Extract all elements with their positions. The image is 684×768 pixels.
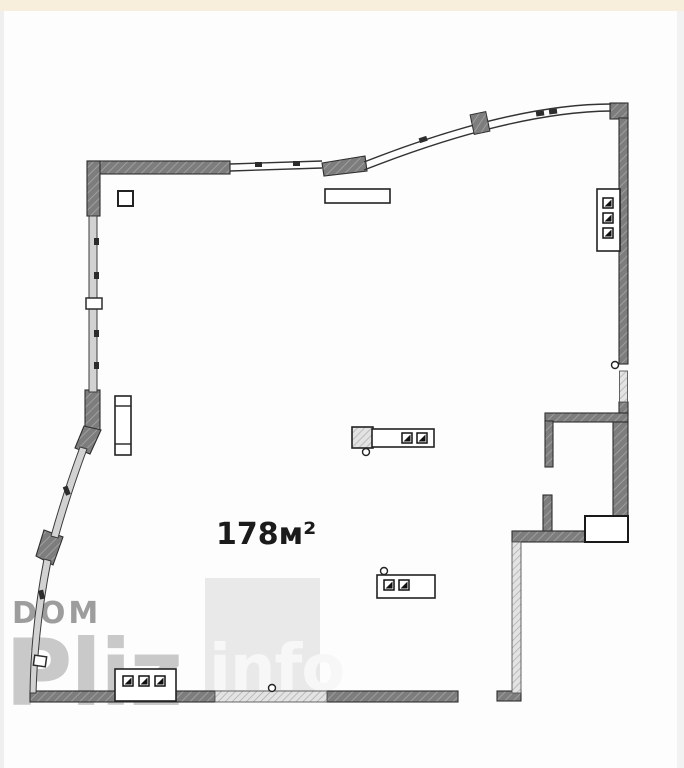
screenshot-root: DOM Pliz info <box>0 0 684 768</box>
hinge-circle-icon <box>381 568 388 575</box>
left-edge-border <box>0 11 4 768</box>
electrical-panel-icon <box>597 189 620 251</box>
switch-square-icon <box>603 198 613 238</box>
window-tick <box>94 272 99 279</box>
window-tick <box>94 362 99 369</box>
wall-bottom-center <box>327 691 458 702</box>
fixtures <box>115 189 620 701</box>
wall-top-left-post <box>87 161 100 216</box>
wall-niche-left-upper <box>545 421 553 467</box>
wall-left-block <box>85 390 100 430</box>
electrical-panel-bottom-icon <box>115 669 176 701</box>
window-tick <box>94 238 99 245</box>
door-hinge-icon <box>269 685 276 692</box>
wall-top-right-corner <box>610 103 628 119</box>
window-top-inner-line <box>230 168 322 171</box>
window-mullion-block <box>470 112 490 135</box>
window-tick <box>255 162 262 167</box>
hinge-circle-icon <box>363 449 370 456</box>
window-tick <box>549 109 558 115</box>
window-top-outer-line <box>230 161 322 164</box>
column-icon <box>115 396 131 455</box>
window-marker-left <box>86 298 102 309</box>
doorway-opening <box>585 516 628 542</box>
fixture-square <box>118 191 133 206</box>
island-unit-icon <box>352 427 434 456</box>
window-curve-left-lower <box>30 559 51 693</box>
wall-niche-right <box>613 422 628 517</box>
window-tick <box>419 136 428 143</box>
wall-bottom-right-vertical <box>512 542 521 693</box>
window-marker-curve <box>33 655 46 667</box>
top-beige-strip <box>0 0 684 11</box>
window-ticks <box>33 109 557 667</box>
wall-top <box>88 161 230 174</box>
window-tick <box>94 330 99 337</box>
wall-bottom-light-section <box>215 691 327 702</box>
window-tick <box>293 161 300 166</box>
wall-top-angled-block <box>322 156 367 176</box>
socket-box-icon <box>377 568 435 599</box>
fixture-rect <box>325 189 390 203</box>
door-leaf-right <box>620 371 628 402</box>
wall-niche-left-lower <box>543 495 552 533</box>
floor-plan-drawing <box>0 0 684 768</box>
area-label: 178м² <box>216 517 316 552</box>
wall-niche-top <box>545 413 628 422</box>
openings <box>269 362 629 692</box>
door-hinge-icon <box>612 362 619 369</box>
right-edge-border <box>677 11 684 768</box>
